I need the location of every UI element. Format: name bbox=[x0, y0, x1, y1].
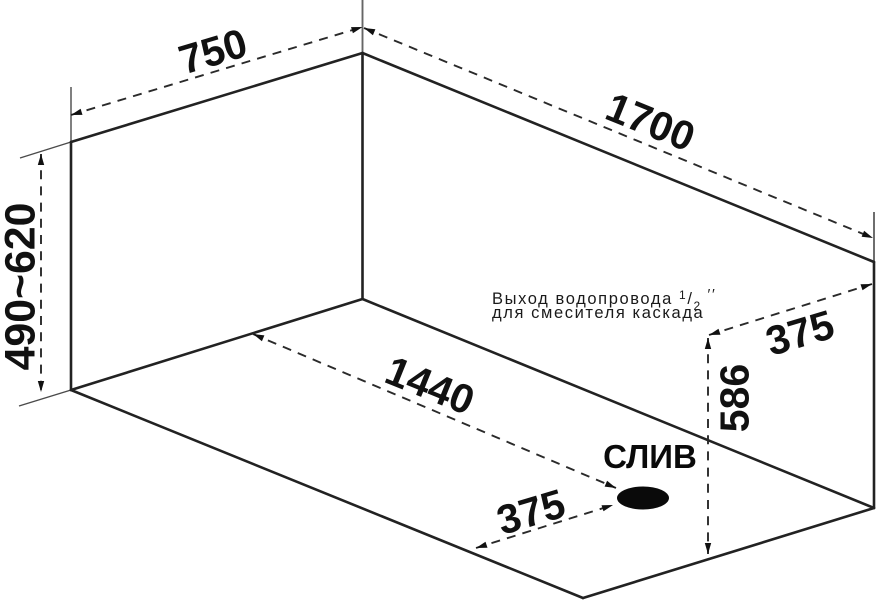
svg-text:586: 586 bbox=[712, 364, 758, 432]
svg-text:490~620: 490~620 bbox=[0, 203, 45, 371]
svg-text:для смесителя каскада: для смесителя каскада bbox=[492, 304, 704, 322]
svg-text:СЛИВ: СЛИВ bbox=[603, 438, 697, 475]
